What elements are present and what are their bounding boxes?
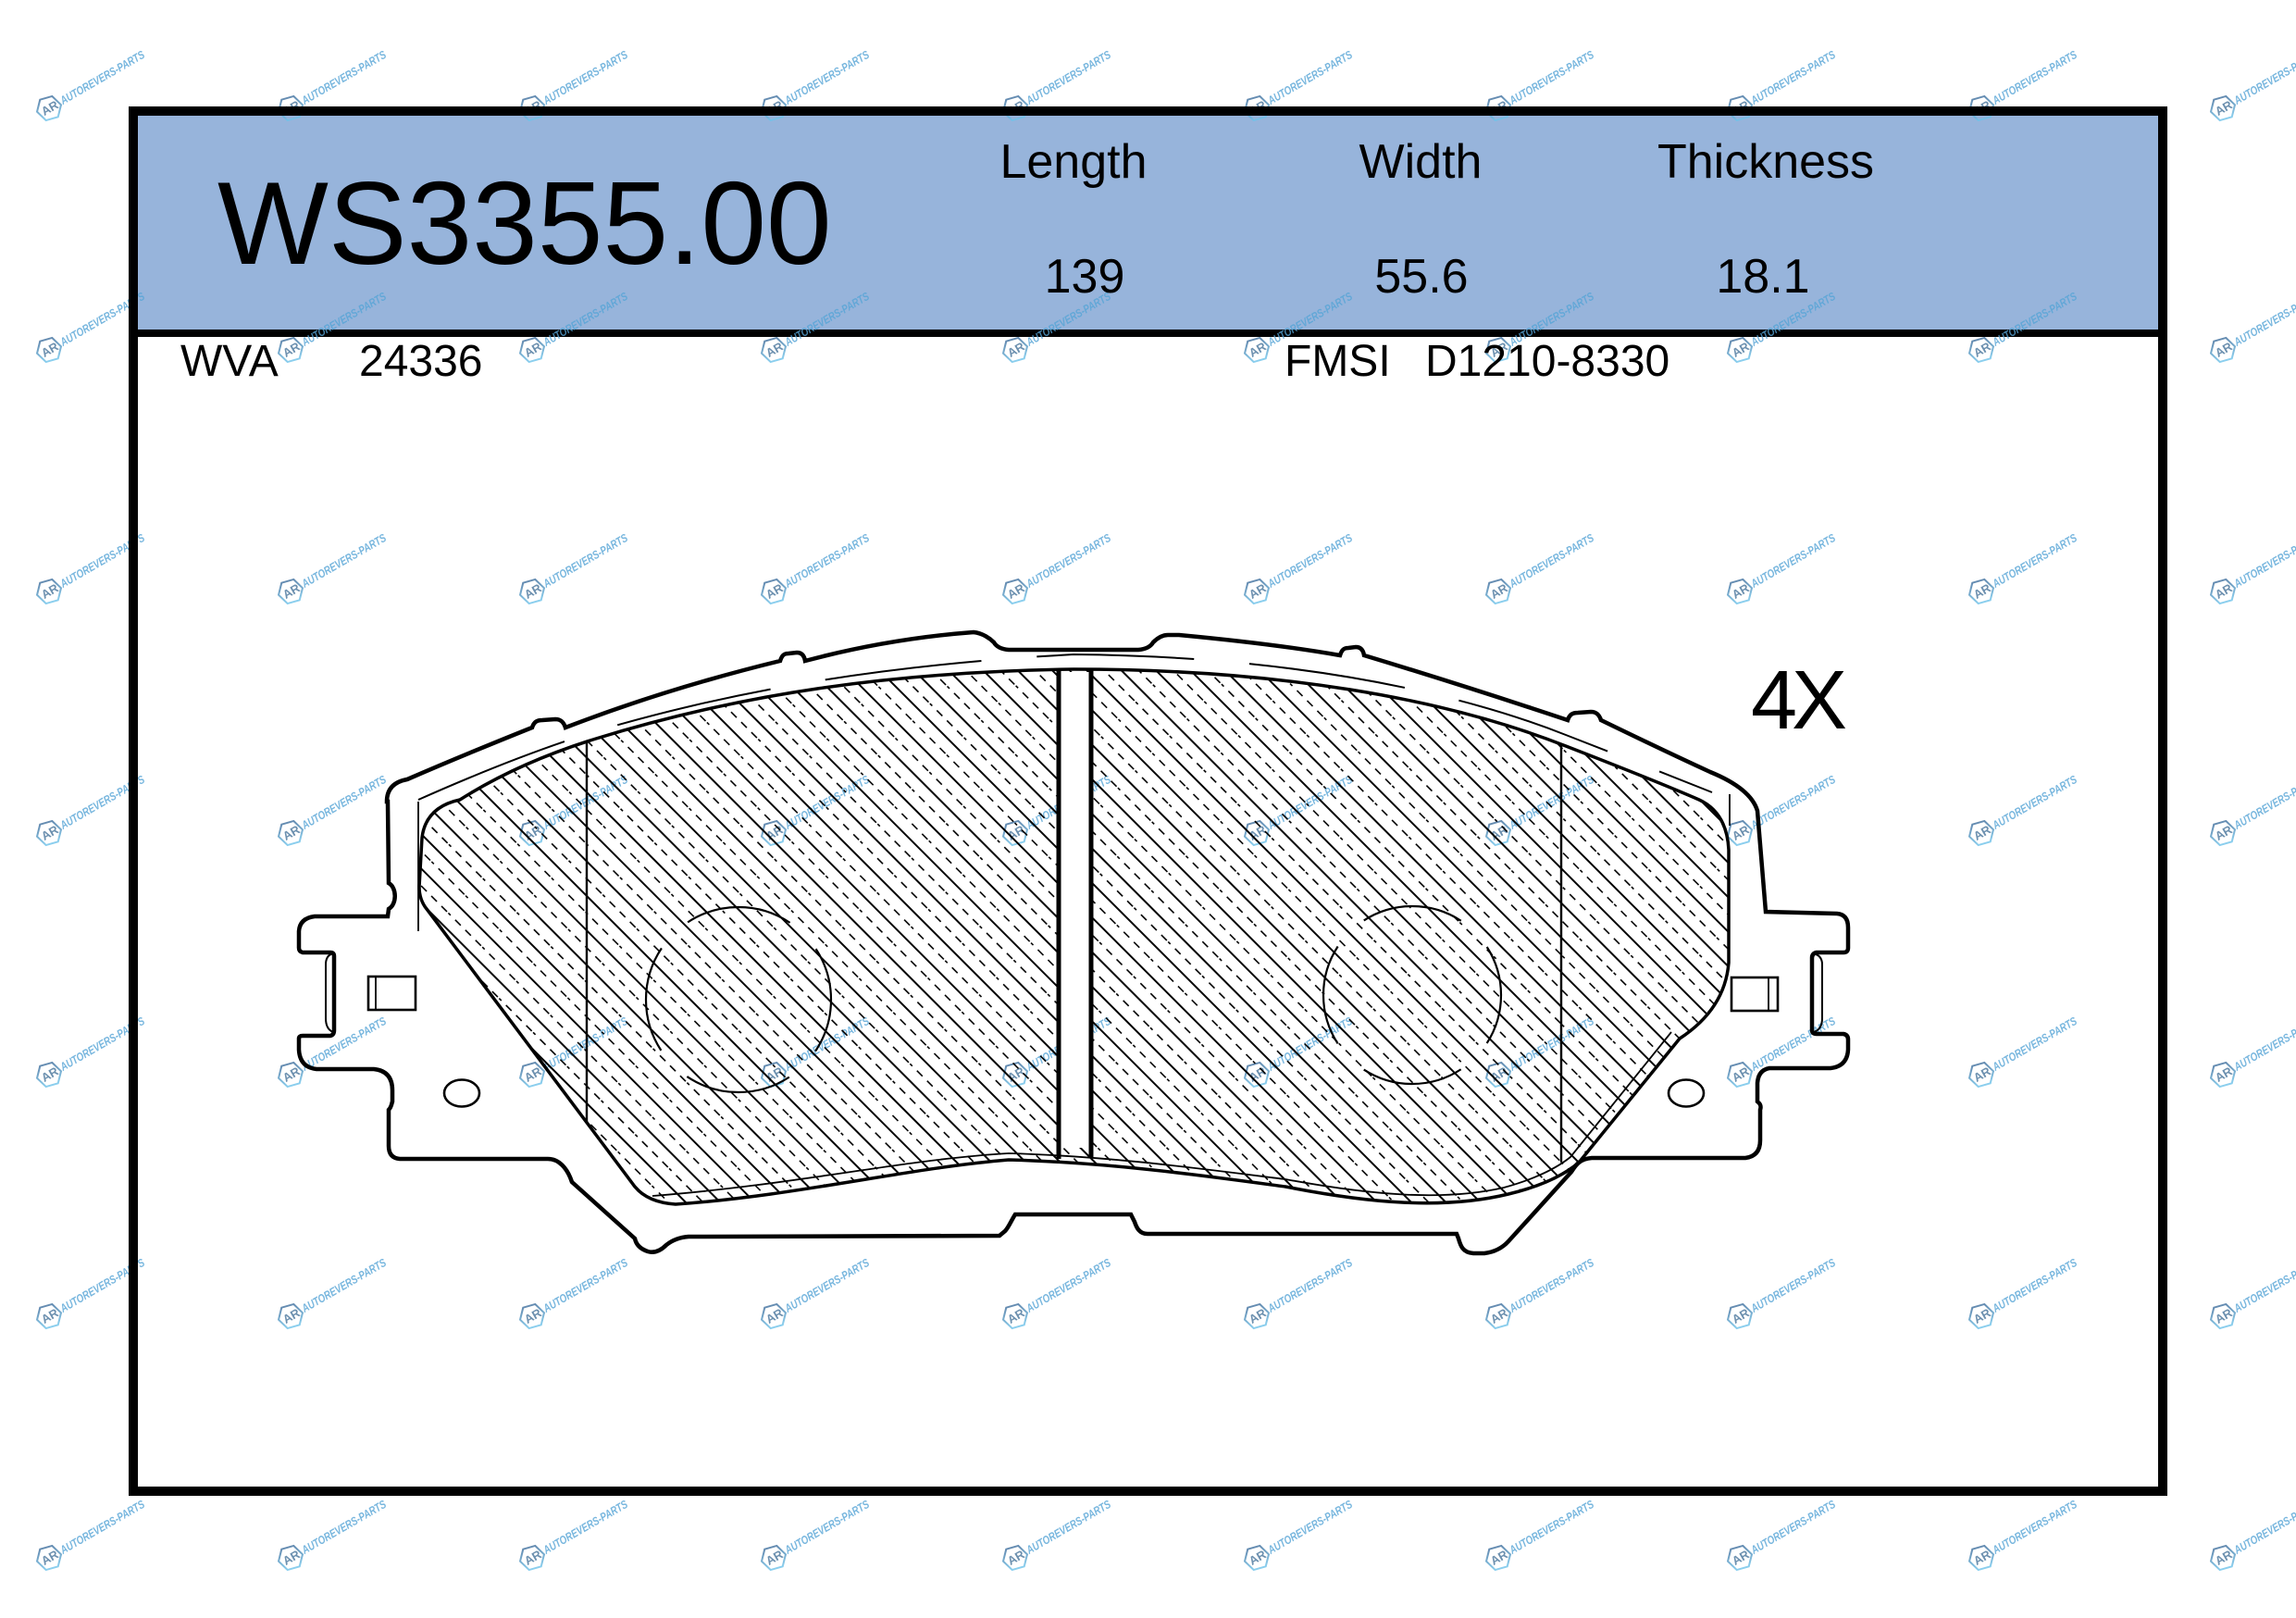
svg-text:18.1: 18.1 xyxy=(1716,250,1809,304)
svg-text:WVA: WVA xyxy=(180,337,279,386)
svg-text:24336: 24336 xyxy=(359,337,482,386)
svg-text:Length: Length xyxy=(999,135,1147,189)
svg-text:4X: 4X xyxy=(1751,654,1846,747)
svg-text:FMSI: FMSI xyxy=(1285,337,1391,386)
svg-text:55.6: 55.6 xyxy=(1374,250,1468,304)
svg-text:Thickness: Thickness xyxy=(1657,135,1874,189)
svg-text:Width: Width xyxy=(1359,135,1483,189)
svg-text:WS3355.00: WS3355.00 xyxy=(217,157,832,289)
svg-text:D1210-8330: D1210-8330 xyxy=(1425,337,1669,386)
svg-text:139: 139 xyxy=(1045,250,1125,304)
